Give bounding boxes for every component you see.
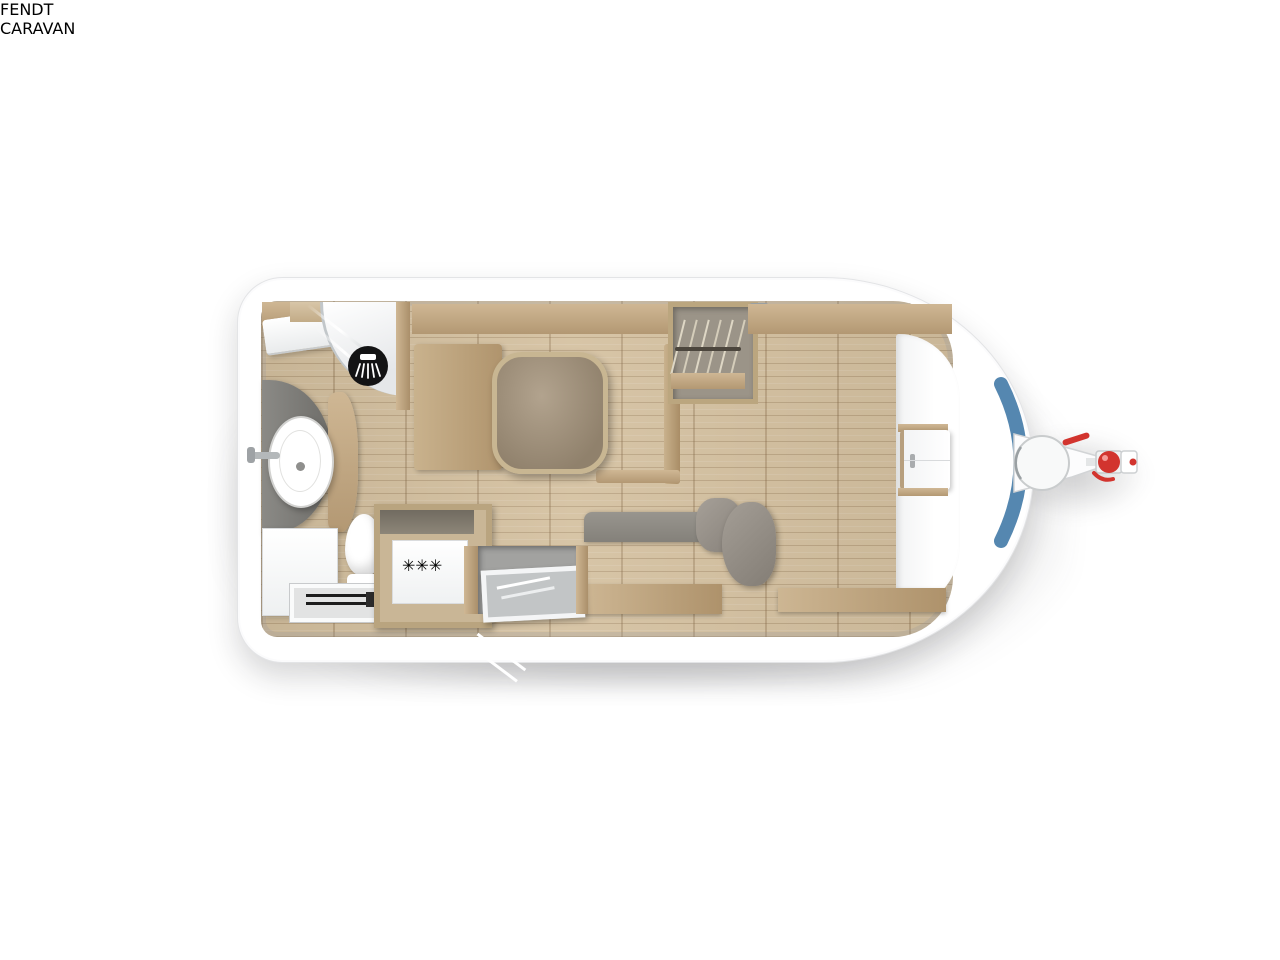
brand-name: FENDT [0,0,75,19]
front-end-graphics [0,0,1280,960]
fendt-logo: FENDT CARAVAN [0,0,75,38]
tow-hitch-icon [1014,432,1137,492]
caravan-floorplan: ✳✳✳ FENDT [0,0,1280,960]
brand-sub-name: CARAVAN [0,19,75,38]
